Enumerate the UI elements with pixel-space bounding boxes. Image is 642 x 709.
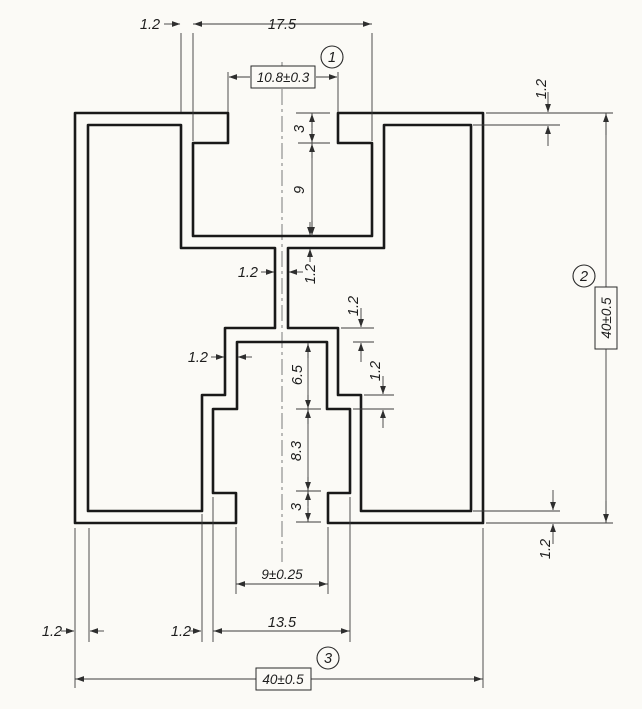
dim-recess-depth: 6.5 — [290, 364, 306, 385]
left-cavity-contour — [88, 125, 275, 511]
dim-overall-width: 40±0.5 — [262, 672, 304, 687]
dim-foot-step-wall: 1.2 — [368, 361, 384, 381]
right-cavity-contour — [288, 125, 471, 511]
dim-top-lip-depth: 3 — [292, 125, 308, 133]
dim-bottom-cavity-width: 13.5 — [268, 615, 297, 631]
balloon-3: 3 — [324, 651, 332, 667]
dim-overall-height: 40±0.5 — [599, 297, 614, 339]
dim-bottom-opening: 9±0.25 — [261, 567, 303, 582]
drawing-sheet: 1.2 17.5 10.8±0.3 3 9 1.2 40±0.5 1.2 1.2… — [0, 0, 642, 709]
profile-outer-contour — [75, 113, 483, 523]
dim-block-top-wall-right: 1.2 — [346, 296, 362, 316]
dim-mid-cavity-depth: 8.3 — [289, 441, 305, 461]
dimension-lines — [61, 24, 606, 679]
dim-bottom-lip-depth: 3 — [289, 503, 305, 511]
dim-block-left-wall: 1.2 — [188, 350, 208, 366]
dim-top-cavity-depth: 9 — [292, 186, 308, 194]
dim-top-block-bottom-wall: 1.2 — [303, 264, 319, 284]
dim-wall-top-right: 1.2 — [534, 79, 550, 99]
balloon-2: 2 — [579, 269, 588, 285]
dim-foot-wall-bottom: 1.2 — [171, 624, 191, 640]
extension-lines — [75, 33, 613, 688]
dim-wall-bottom-left: 1.2 — [42, 624, 62, 640]
balloon-1: 1 — [328, 50, 336, 66]
profile-drawing: 1.2 17.5 10.8±0.3 3 9 1.2 40±0.5 1.2 1.2… — [0, 0, 642, 709]
dim-web-thickness: 1.2 — [238, 265, 258, 281]
dim-top-slot-opening: 10.8±0.3 — [257, 70, 310, 85]
dim-top-cavity-width: 17.5 — [268, 17, 297, 33]
dim-wall-bottom-right: 1.2 — [538, 539, 554, 559]
dim-wall-top-left: 1.2 — [140, 17, 160, 33]
